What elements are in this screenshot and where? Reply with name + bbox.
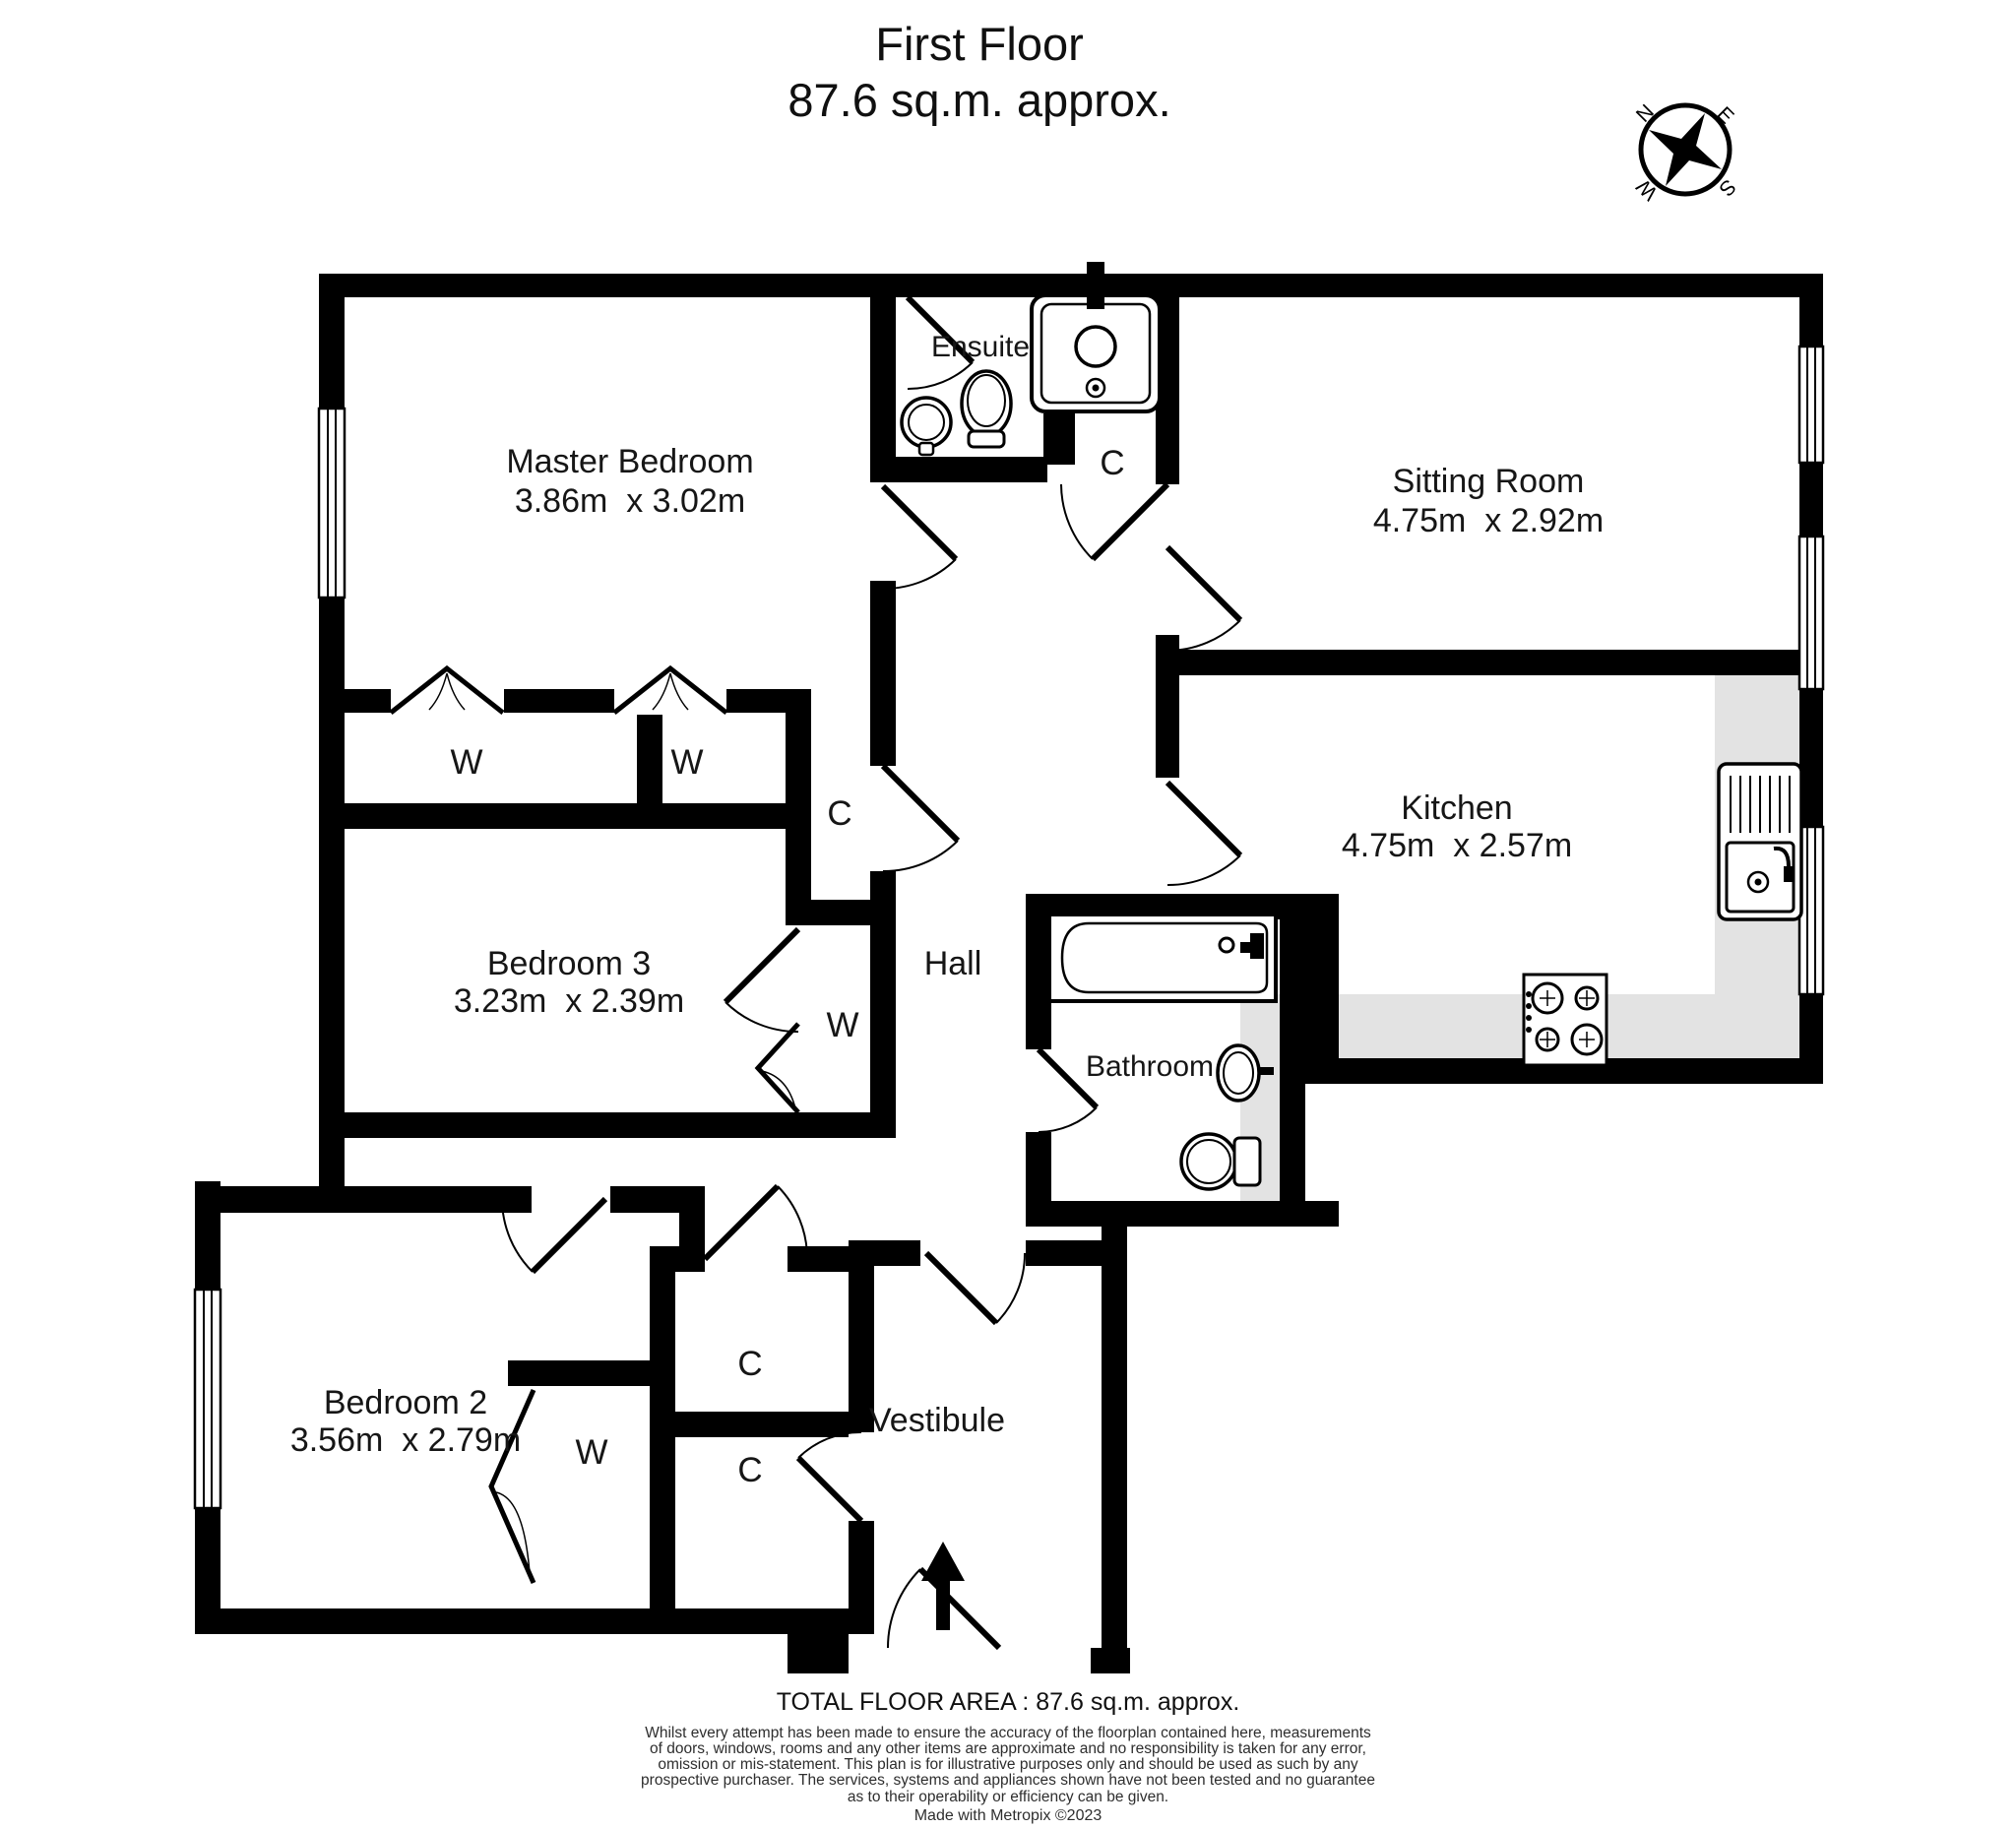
sink-tap [1258, 1067, 1274, 1075]
label-wardrobe-bedroom2: W [575, 1433, 607, 1472]
bifold-hall-wardrobe [758, 1024, 798, 1112]
door-cupboard-ensuite [1061, 484, 1167, 559]
label-cupboard-hall: C [827, 794, 851, 833]
draining-board [1731, 776, 1790, 833]
label-wardrobe-master2: W [670, 743, 703, 782]
total-floor-area: TOTAL FLOOR AREA : 87.6 sq.m. approx. [0, 1688, 2016, 1717]
compass-n: N [1632, 100, 1659, 127]
compass-w: W [1632, 174, 1662, 204]
label-kitchen: Kitchen [1401, 789, 1512, 827]
window-sitting-room-2 [1799, 536, 1823, 689]
label-bedroom3: Bedroom 3 [487, 945, 651, 982]
dims-bedroom3: 3.23m x 2.39m [454, 982, 684, 1020]
label-wardrobe-master1: W [450, 743, 482, 782]
floorplan-page: First Floor 87.6 sq.m. approx. [0, 0, 2016, 1829]
window-master-bedroom [319, 409, 345, 598]
label-master-bedroom: Master Bedroom [506, 443, 753, 480]
shower-mixer [1087, 262, 1104, 309]
footer: TOTAL FLOOR AREA : 87.6 sq.m. approx. Wh… [0, 1688, 2016, 1825]
dims-master-bedroom: 3.86m x 3.02m [515, 482, 745, 520]
label-cupboard-1: C [737, 1345, 762, 1383]
dims-bedroom2: 3.56m x 2.79m [290, 1421, 521, 1459]
door-bedroom3 [725, 929, 798, 1032]
disclaimer-text: Whilst every attempt has been made to en… [0, 1726, 2016, 1805]
door-cupboard2 [798, 1432, 861, 1521]
door-cupboard-hall [883, 766, 958, 871]
floorplan-canvas: N E S W Master Bedroom 3.86m x 3.02m Ens… [0, 0, 2016, 1829]
kitchen-tap [1784, 866, 1794, 882]
entrance-arrow-icon [921, 1542, 965, 1630]
compass-star [1649, 113, 1722, 186]
label-cupboard-2: C [737, 1451, 762, 1489]
label-sitting-room: Sitting Room [1393, 463, 1585, 500]
label-cupboard-ensuite: C [1100, 444, 1124, 482]
label-hall: Hall [924, 945, 982, 982]
bathroom-toilet [1181, 1134, 1236, 1189]
shower-head [1076, 327, 1115, 366]
label-vestibule: Vestibule [869, 1402, 1005, 1439]
bifold-bedroom2-wardrobe [491, 1390, 534, 1583]
bifold-wardrobe2 [614, 668, 726, 713]
label-wardrobe-hall: W [826, 1006, 858, 1044]
bifold-wardrobe1 [391, 668, 503, 713]
dims-sitting-room: 4.75m x 2.92m [1373, 502, 1604, 539]
label-bedroom2: Bedroom 2 [324, 1384, 487, 1421]
door-kitchen [1167, 783, 1240, 885]
window-sitting-room-1 [1799, 347, 1823, 463]
label-bathroom: Bathroom [1086, 1050, 1214, 1083]
compass-rose-icon: N E S W [1632, 100, 1740, 205]
bathtub [1049, 914, 1276, 1001]
label-ensuite: Ensuite [931, 331, 1030, 363]
bath-plug [1220, 938, 1233, 952]
metropix-credit: Made with Metropix ©2023 [0, 1807, 2016, 1825]
door-master-bedroom [883, 486, 956, 589]
window-bedroom2 [195, 1290, 220, 1508]
door-vestibule-hall [926, 1253, 1025, 1323]
dims-kitchen: 4.75m x 2.57m [1342, 827, 1572, 864]
compass-e: E [1713, 102, 1738, 128]
